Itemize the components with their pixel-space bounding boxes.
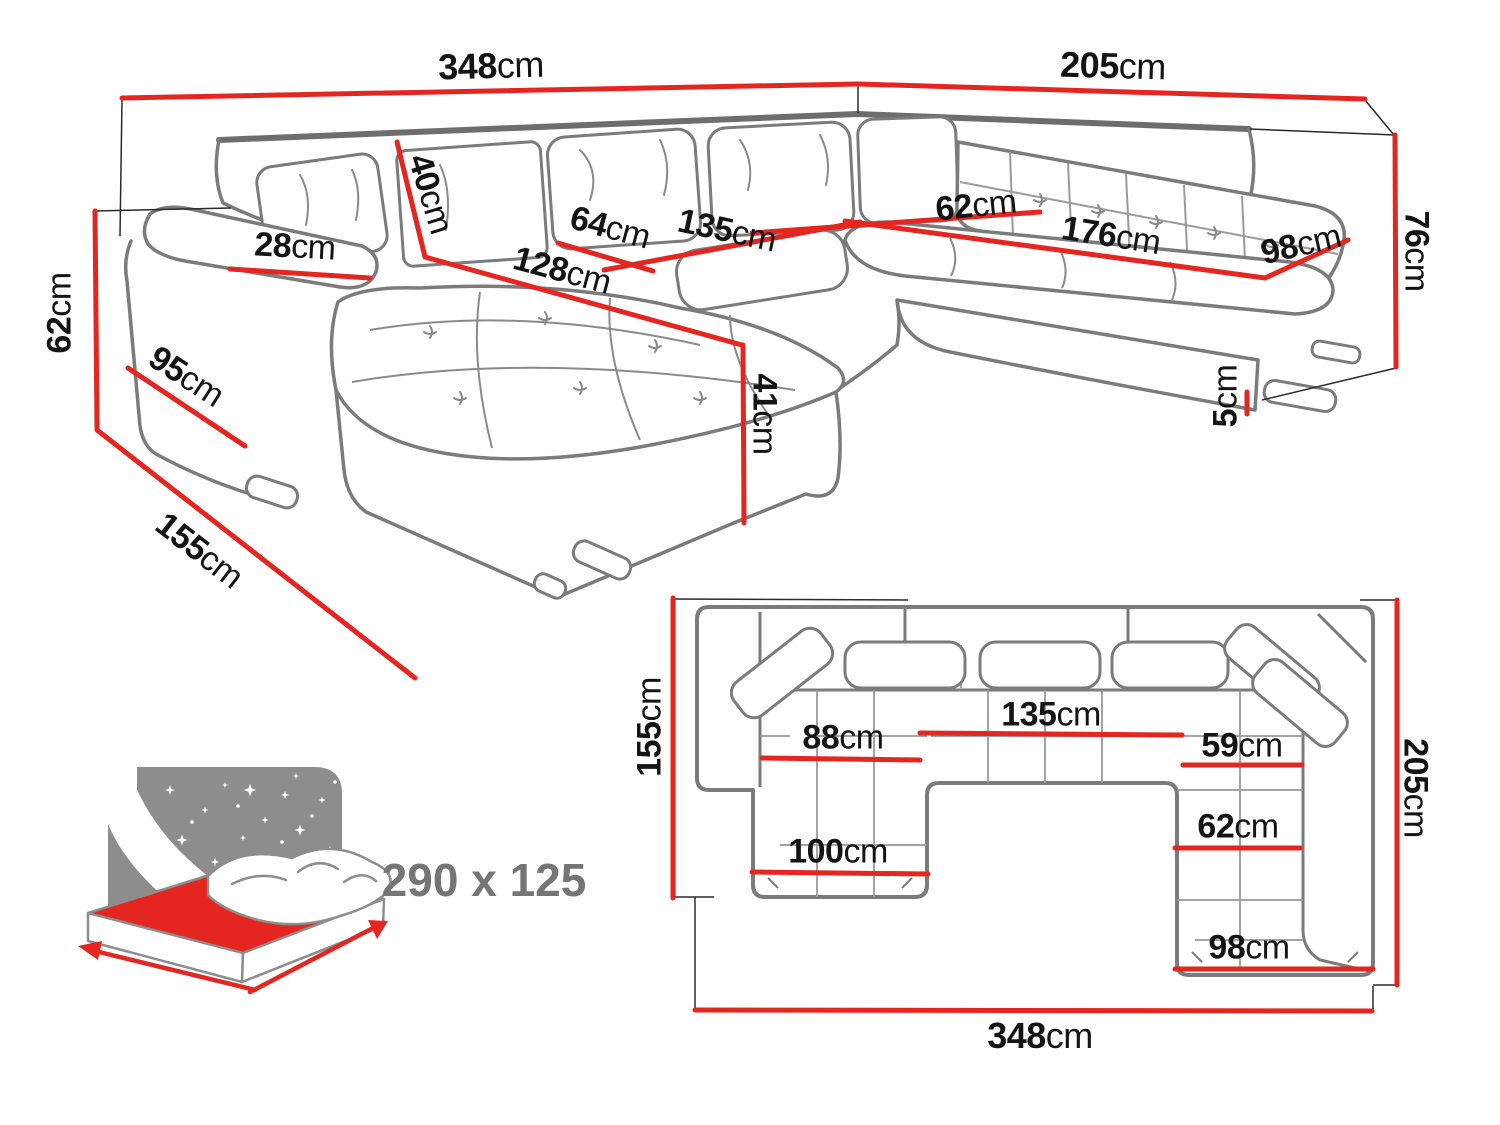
- dim-plan-right-seat-width: 59cm: [1201, 727, 1282, 766]
- sofa-plan-drawing: [697, 607, 1373, 975]
- dim-plan-right-seat-depth: 62cm: [1197, 808, 1278, 847]
- dim-plan-left-seat-width: 88cm: [802, 719, 883, 758]
- dim-3d-arm-height: 62cm: [41, 272, 80, 353]
- dimension-diagram: 348cm 205cm 62cm 155cm 95cm 28cm 40cm 12…: [0, 0, 1500, 1125]
- dim-plan-right-end-width: 98cm: [1208, 929, 1289, 968]
- dim-plan-right-side-depth: 205cm: [1396, 738, 1435, 838]
- dim-plan-chaise-side-depth: 155cm: [631, 677, 670, 777]
- dim-plan-chaise-width: 100cm: [788, 833, 888, 872]
- dim-3d-total-depth-right: 205cm: [1060, 44, 1167, 89]
- dim-3d-arm-top-width: 28cm: [253, 225, 336, 268]
- sleeping-area-size: 290 x 125: [382, 853, 587, 907]
- dim-plan-middle-seat-width: 135cm: [1001, 696, 1101, 735]
- dim-plan-total-width: 348cm: [987, 1015, 1093, 1057]
- dim-3d-foot-height: 5cm: [1207, 365, 1246, 428]
- dim-3d-seat-height: 41cm: [745, 373, 784, 454]
- dim-3d-total-width-left: 348cm: [438, 44, 545, 89]
- dim-3d-back-height: 76cm: [1397, 210, 1436, 291]
- sleeping-function-icon: [78, 767, 391, 992]
